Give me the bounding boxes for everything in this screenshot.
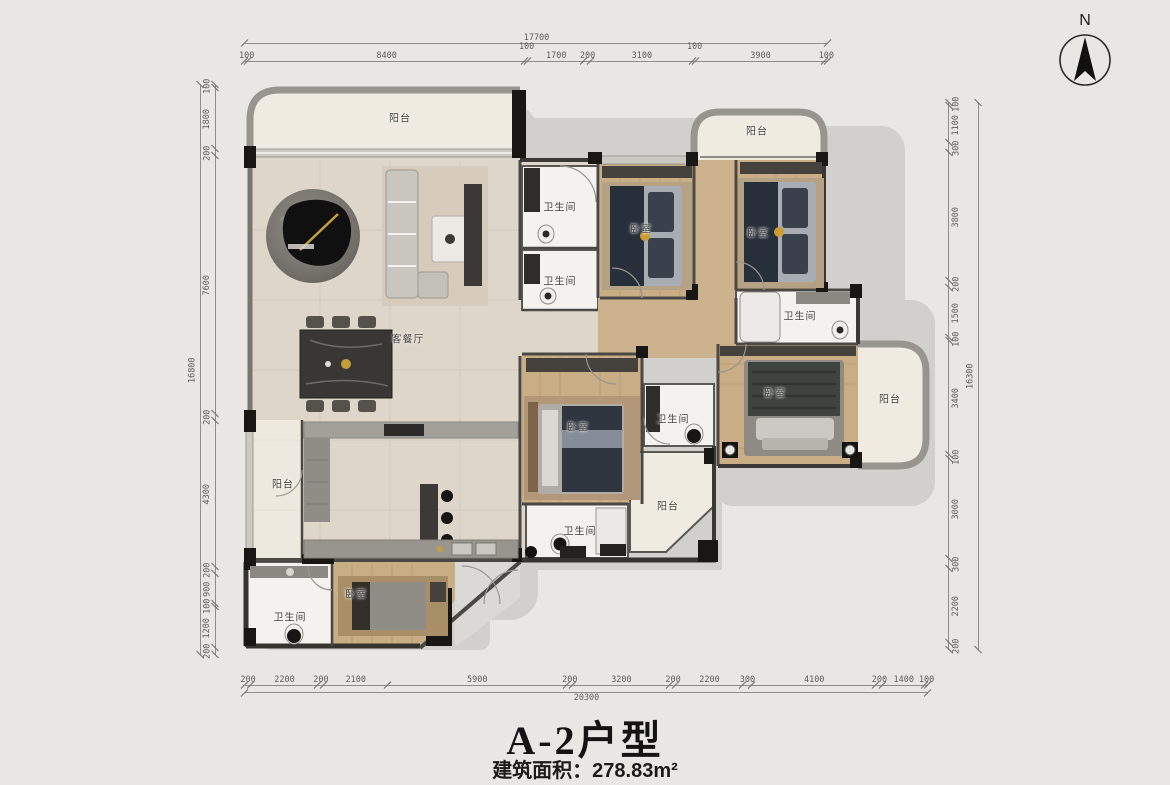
dimension-value: 3900	[750, 51, 770, 62]
room-label-bath-bottom-left: 卫生间	[274, 609, 307, 624]
room-label-bedroom-top-mid: 卧室	[630, 221, 652, 236]
room-label-bath-entry-upper: 卫生间	[544, 199, 577, 214]
dimension-value: 16800	[188, 357, 199, 383]
tv-console	[464, 184, 482, 286]
dimension-value: 3200	[611, 675, 631, 686]
dimension-top-segments: 100 8400 100 1700 200 3100 100 3900 100	[245, 48, 828, 62]
room-label-balcony-top-right: 阳台	[746, 123, 768, 138]
dimension-value: 3100	[632, 51, 652, 62]
dimension-value: 1800	[202, 109, 213, 129]
dimension-right-segments: 100 1100 300 3800 200 1500 100 3400 100 …	[948, 103, 964, 650]
room-label-bedroom-top-right: 卧室	[747, 225, 769, 240]
room-label-bath-entry-lower: 卫生间	[544, 273, 577, 288]
dimension-value: 1200	[202, 618, 213, 638]
bathtub	[740, 292, 780, 342]
dimension-value: 3400	[951, 388, 962, 408]
dimension-value: 1100	[951, 115, 962, 135]
dimension-value: 1700	[546, 51, 566, 62]
room-label-balcony-top-left: 阳台	[389, 110, 411, 125]
dimension-value: 100	[819, 51, 834, 62]
room-label-balcony-left: 阳台	[272, 476, 294, 491]
dimension-value: 8400	[376, 51, 396, 62]
dimension-value: 2200	[699, 675, 719, 686]
room-label-bath-bottom-mid: 卫生间	[564, 523, 597, 538]
dimension-bottom-total: 20300	[245, 692, 928, 706]
room-label-bedroom-mid: 卧室	[567, 419, 589, 434]
washer	[600, 544, 626, 556]
dimension-left-segments: 100 1800 200 7600 200 4300 200 900 100 1…	[200, 85, 216, 655]
dimension-left-total: 16800	[186, 85, 201, 655]
north-label: N	[1046, 12, 1124, 30]
north-compass: N	[1046, 12, 1124, 89]
plan-area-text: 建筑面积：278.83m²	[0, 754, 1170, 783]
room-label-bath-right: 卫生间	[784, 308, 817, 323]
room-label-bedroom-master: 卧室	[764, 385, 786, 400]
dimension-right-total: 16300	[964, 103, 979, 650]
room-label-bedroom-bottom-left: 卧室	[345, 586, 367, 601]
dimension-bottom-segments: 200 2200 200 2100 5900 200 3200 200 2200…	[245, 672, 928, 686]
dimension-value: 2200	[951, 596, 962, 616]
dimension-top-total: 17700	[245, 30, 828, 44]
room-label-bath-mid: 卫生间	[657, 411, 690, 426]
cooktop	[384, 424, 424, 436]
floorplan-page: 阳台 客餐厅 卫生间 卫生间 卧室 阳台 卧室 卫生间 卧室 阳台 卧室 卫生间…	[0, 0, 1170, 785]
dimension-value: 4100	[804, 675, 824, 686]
dimension-value: 7600	[202, 275, 213, 295]
dimension-value: 3000	[951, 499, 962, 519]
dimension-value: 2200	[274, 675, 294, 686]
dimension-value: 3800	[951, 207, 962, 227]
dimension-value: 200	[202, 644, 213, 659]
sink	[452, 543, 472, 555]
dimension-value: 4300	[202, 484, 213, 504]
dimension-value: 200	[951, 639, 962, 654]
balcony-left-floor	[250, 420, 302, 562]
dimension-value: 900	[202, 581, 213, 596]
room-label-balcony-right: 阳台	[879, 391, 901, 406]
room-label-balcony-bottom-mid: 阳台	[657, 498, 679, 513]
dining-set	[300, 316, 392, 412]
room-label-living-dining: 客餐厅	[392, 331, 425, 346]
compass-icon	[1056, 31, 1114, 89]
sofa-set	[382, 166, 488, 306]
dimension-value: 1500	[951, 303, 962, 323]
floorplan-drawing	[0, 0, 1170, 785]
dimension-value: 2100	[346, 675, 366, 686]
dimension-value: 5900	[467, 675, 487, 686]
dimension-value: 16300	[966, 364, 977, 390]
piano-rug	[266, 189, 360, 283]
dimension-value: 1400	[894, 675, 914, 686]
dimension-value: 100	[919, 675, 934, 686]
balcony-top-left-floor	[250, 90, 520, 156]
dimension-value: 20300	[574, 693, 600, 704]
